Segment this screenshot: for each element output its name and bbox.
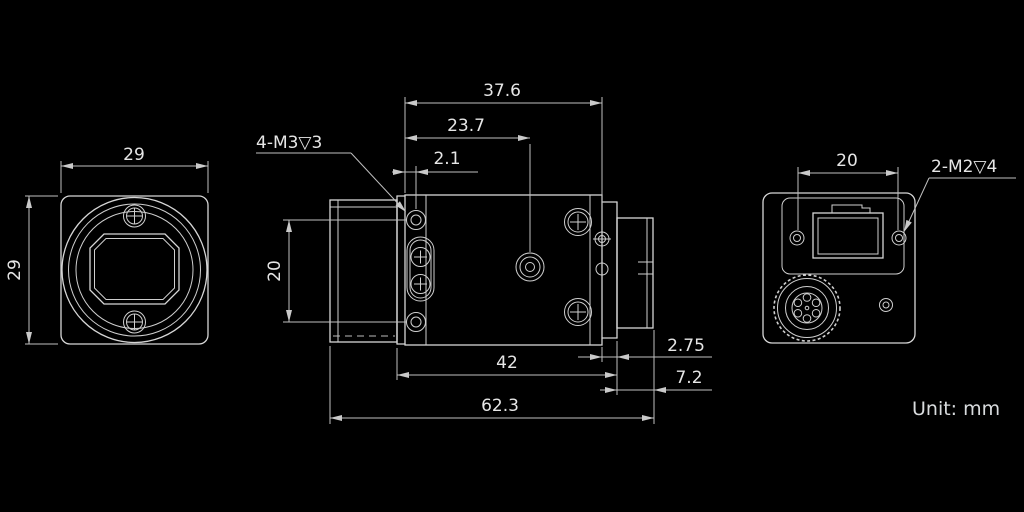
lens-barrel xyxy=(330,200,397,342)
front-height-dimension: 29 xyxy=(5,196,58,344)
dim-body-length: 42 xyxy=(496,353,518,373)
ethernet-port xyxy=(813,205,883,258)
thread-note-text: 4-M3▽3 xyxy=(256,133,322,153)
body-length-dimension: 42 xyxy=(397,341,617,395)
side-view: 37.6 23.7 2.1 4-M3▽3 20 xyxy=(256,81,712,424)
dim-front-hole-offset: 2.1 xyxy=(433,149,460,169)
front-width-dimension: 29 xyxy=(61,145,208,193)
sensor-window-inner xyxy=(95,239,175,300)
side-body-outline xyxy=(405,195,602,345)
dim-housing-length: 37.6 xyxy=(483,81,521,101)
dim-hole-span: 23.7 xyxy=(447,116,485,136)
drawing-canvas: 29 29 xyxy=(0,0,1024,512)
dim-front-width: 29 xyxy=(123,145,145,165)
camera-dimension-drawing: 29 29 xyxy=(0,0,1024,512)
overall-length-dimension: 62.3 xyxy=(330,346,654,424)
rear-body-outline xyxy=(763,193,915,343)
front-bottom-screw xyxy=(124,311,146,333)
dim-rear-step: 2.75 xyxy=(667,336,705,356)
front-view: 29 29 xyxy=(5,145,208,344)
power-io-connector xyxy=(774,275,840,341)
dim-hole-pitch: 20 xyxy=(265,260,285,282)
dim-overall-length: 62.3 xyxy=(481,396,519,416)
dim-rear-block: 7.2 xyxy=(675,368,702,388)
tripod-hole xyxy=(516,253,544,281)
rear-thread-note-text: 2-M2▽4 xyxy=(931,157,997,177)
dim-rear-screw-pitch: 20 xyxy=(836,151,858,171)
rear-cover xyxy=(602,202,653,338)
hole-pitch-dimension: 20 xyxy=(265,220,406,322)
dim-front-height: 29 xyxy=(5,259,25,281)
status-led-hole xyxy=(880,299,893,312)
unit-note: Unit: mm xyxy=(912,398,1000,420)
rear-screw-bottom xyxy=(565,299,592,326)
side-slot xyxy=(407,237,434,301)
rear-screw-top xyxy=(565,209,592,236)
mount-hole-bottom xyxy=(407,313,426,332)
mount-hole-top xyxy=(407,211,426,230)
hole-span-dimension: 23.7 xyxy=(405,116,530,252)
rear-view: 20 2-M2▽4 xyxy=(763,151,1016,343)
rear-step-dimension: 2.75 xyxy=(578,336,712,362)
front-top-screw xyxy=(124,205,146,227)
connector-block xyxy=(617,218,653,328)
rear-thread-note: 2-M2▽4 xyxy=(904,157,1016,232)
sensor-window-outer xyxy=(90,234,179,304)
rear-screw-hole-left xyxy=(790,231,804,245)
